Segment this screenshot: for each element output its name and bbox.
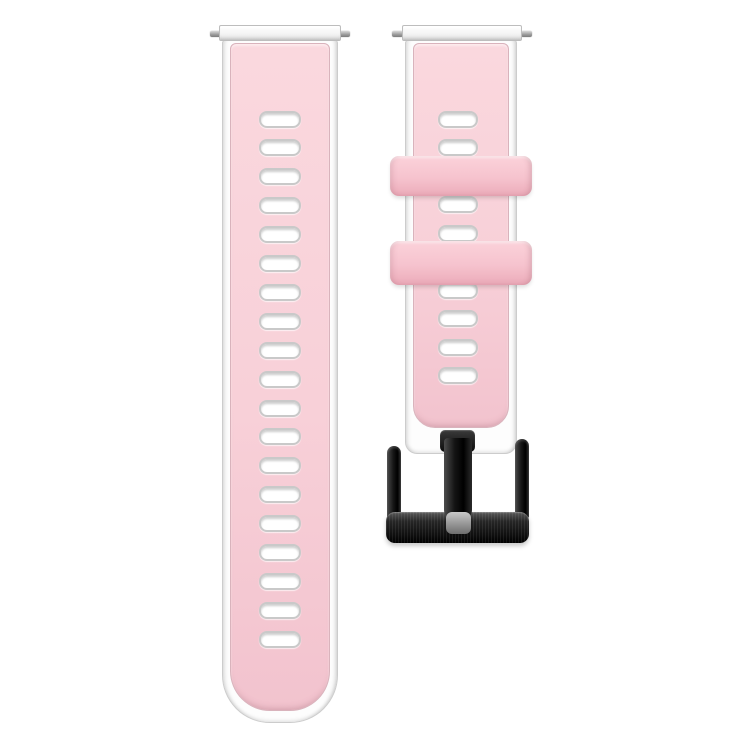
buckle-tongue-tip: [446, 512, 471, 534]
keeper-loop-lower: [390, 241, 532, 285]
keeper-loop-upper: [390, 156, 532, 196]
left-strap-ventilation-holes: [0, 0, 750, 750]
buckle-tongue: [444, 438, 472, 520]
spring-bar-pin-icon: [521, 31, 532, 37]
buckle-arm-left: [387, 446, 401, 518]
left-strap-lug-bar: [219, 25, 341, 41]
left-strap-pink-layer: [230, 43, 330, 711]
right-strap-pink-layer: [413, 43, 509, 428]
buckle-arm-right: [515, 439, 529, 518]
product-photo-watch-strap: [0, 0, 750, 750]
right-strap-lug-bar: [402, 25, 522, 41]
right-strap-ventilation-holes: [0, 0, 750, 750]
